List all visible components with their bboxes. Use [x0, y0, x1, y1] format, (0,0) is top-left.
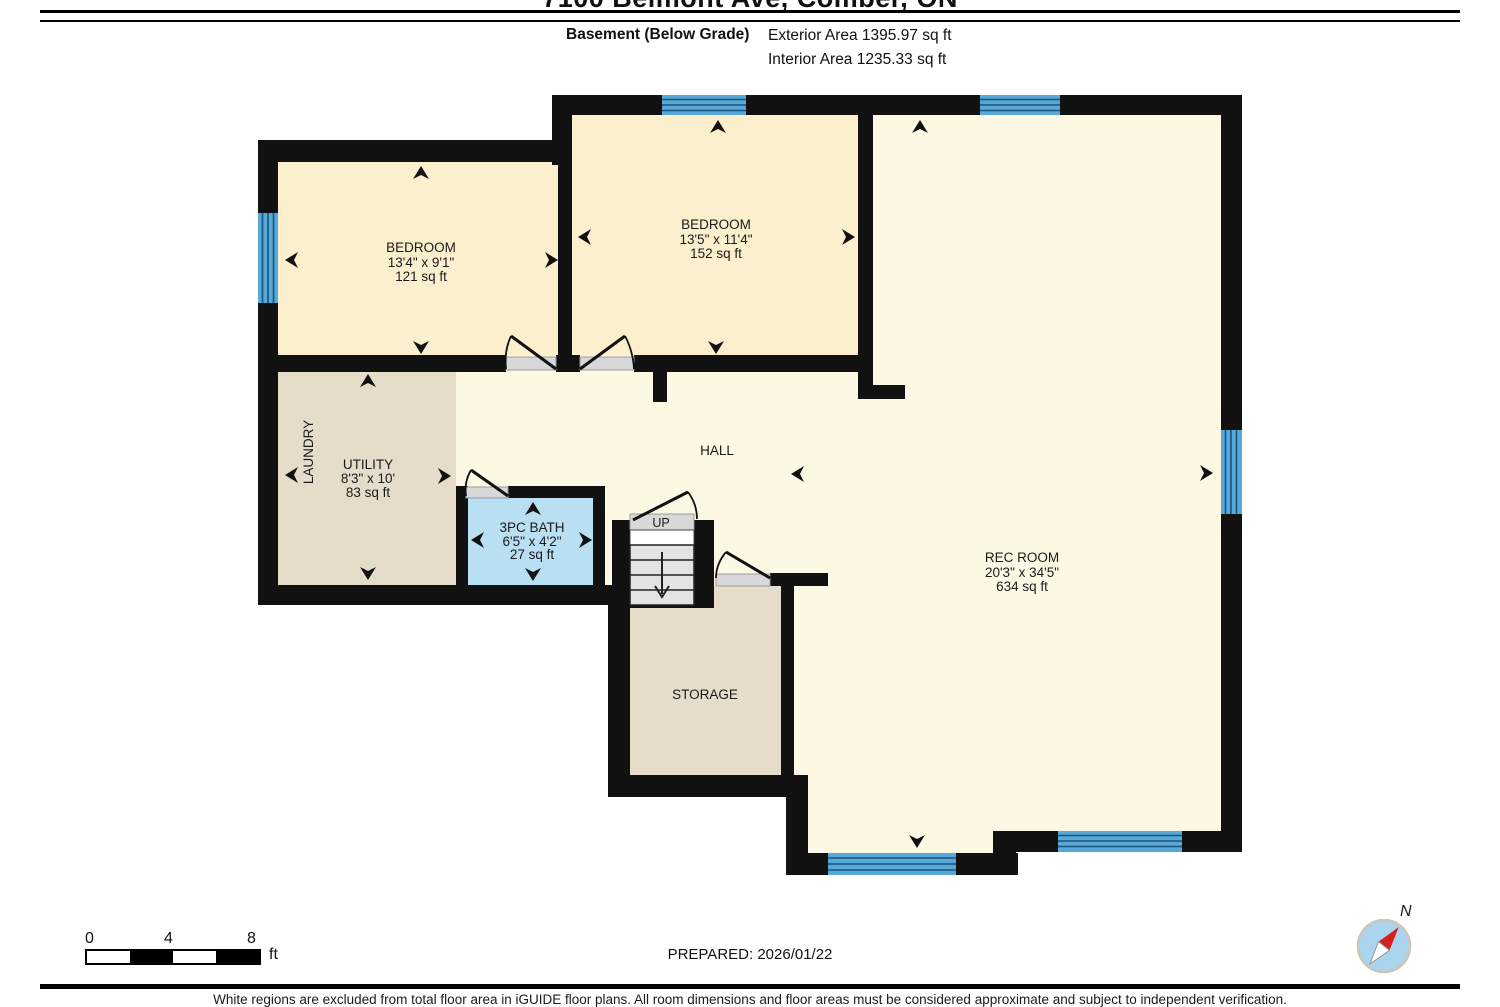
scale-unit: ft — [269, 946, 278, 964]
laundry-label: LAUNDRY — [301, 420, 316, 484]
stairs-up-label: UP — [652, 516, 669, 530]
bedroom1-dims: 13'4" x 9'1" — [388, 255, 455, 270]
rec-room-area: 634 sq ft — [996, 579, 1048, 594]
bath-name: 3PC BATH — [499, 520, 564, 535]
stair-landing — [630, 530, 694, 545]
utility-dims: 8'3" x 10' — [341, 471, 395, 486]
sill-storage — [716, 574, 770, 586]
utility-name: UTILITY — [343, 457, 393, 472]
window-bedroom1-left — [258, 213, 278, 303]
window-rec-bottom-right — [1058, 831, 1182, 852]
scale-tick-8: 8 — [247, 930, 256, 948]
window-rec-top — [980, 95, 1060, 115]
hall-label: HALL — [700, 443, 734, 458]
floorplan: UP — [0, 0, 1500, 1000]
compass-north-label: N — [1400, 903, 1412, 920]
scale-bar-segments — [85, 949, 261, 965]
footer-divider — [40, 984, 1460, 989]
window-bedroom2-top — [662, 95, 746, 115]
prepared-date: PREPARED: 2026/01/22 — [600, 946, 900, 963]
bath-area: 27 sq ft — [510, 547, 555, 562]
scale-tick-4: 4 — [164, 930, 173, 948]
bedroom2-area: 152 sq ft — [690, 246, 742, 261]
bedroom1-area: 121 sq ft — [395, 269, 447, 284]
bedroom1-name: BEDROOM — [386, 240, 456, 255]
room-storage-floor — [630, 586, 781, 775]
utility-area: 83 sq ft — [346, 485, 391, 500]
window-rec-bottom-left — [828, 853, 956, 875]
storage-label: STORAGE — [672, 687, 738, 702]
bedroom2-dims: 13'5" x 11'4" — [679, 232, 752, 247]
bedroom2-name: BEDROOM — [681, 217, 751, 232]
compass-icon: N — [1348, 898, 1422, 984]
rec-room-name: REC ROOM — [985, 550, 1059, 565]
scale-bar: 0 4 8 ft — [85, 930, 385, 970]
window-rec-right — [1221, 430, 1242, 514]
rec-room-dims: 20'3" x 34'5" — [985, 565, 1059, 580]
scale-tick-0: 0 — [85, 930, 94, 948]
